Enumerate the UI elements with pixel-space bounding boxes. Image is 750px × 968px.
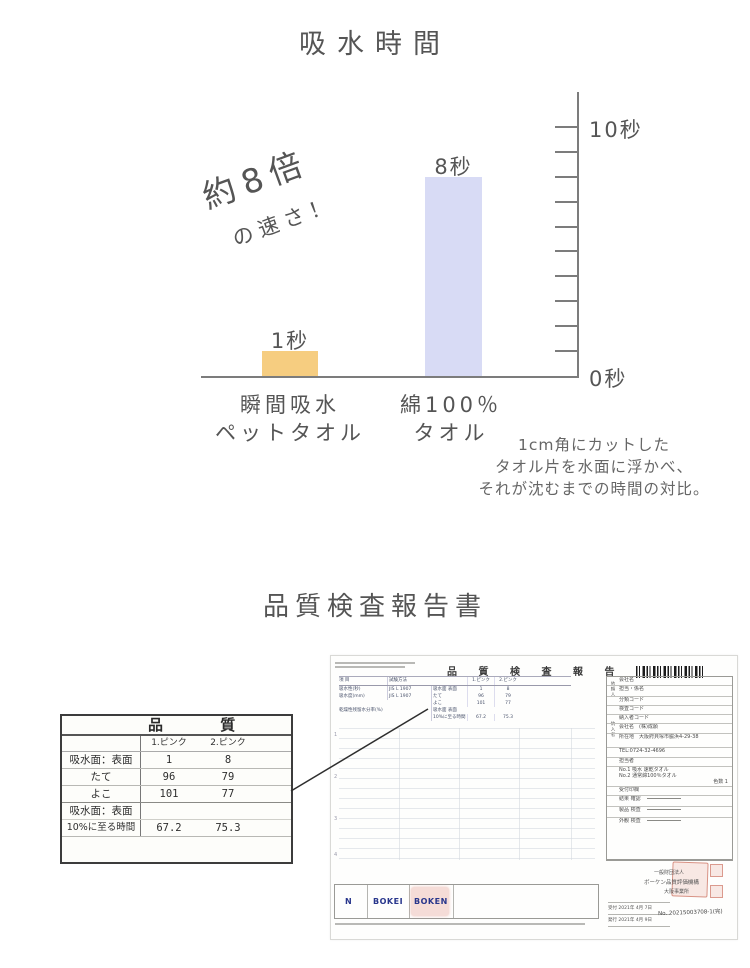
table-header-row: 項 目試験方法1.ピンク2.ピンク	[339, 676, 571, 686]
document-results-table: 項 目試験方法1.ピンク2.ピンク 吸水性(秒)JIS L 1907吸水面 表面…	[339, 676, 571, 721]
note-line: タオル片を水面に浮かべ、	[440, 456, 748, 478]
column-header: 1.ピンク	[141, 736, 197, 751]
y-axis-tick	[555, 176, 577, 178]
bar-value-label-pet-towel: 1秒	[256, 325, 324, 355]
grid-vertical-line	[459, 728, 460, 860]
org-name-line: 一般財団法人	[654, 869, 684, 876]
red-stamp-small	[710, 885, 723, 898]
y-axis-tick	[555, 226, 577, 228]
chart-title: 吸水時間	[0, 22, 750, 61]
y-axis-line	[577, 92, 579, 378]
excerpt-row: たて 96 79	[62, 769, 291, 786]
fine-print-line	[335, 662, 415, 664]
panel-row: 会社名	[607, 677, 732, 686]
grid-vertical-line	[571, 728, 572, 860]
y-axis-tick	[555, 300, 577, 302]
excerpt-row: 吸水面：表面 1 8	[62, 752, 291, 769]
grid-vertical-line	[519, 728, 520, 860]
logo-n: N	[345, 897, 352, 906]
logo-bokei: BOKEI	[373, 897, 403, 906]
row-number: 1	[334, 732, 337, 738]
divider	[409, 885, 410, 918]
panel-row-check: 外観 検査	[607, 818, 732, 828]
panel-row-check: 製品 検査	[607, 807, 732, 818]
y-axis-min-label: 0秒	[589, 363, 627, 393]
row-number: 2	[334, 774, 337, 780]
column-header: 2.ピンク	[197, 736, 259, 751]
fine-print-line	[335, 666, 405, 668]
panel-row-stamp: 受付印欄	[607, 787, 732, 796]
panel-row-company: 会社名 (株)成願	[607, 724, 732, 734]
y-axis-max-label: 10秒	[589, 114, 643, 144]
panel-row: 分類コード	[607, 697, 732, 706]
category-line: 瞬間吸水	[197, 391, 383, 419]
panel-row-tel: TEL:0724-32-4696	[607, 748, 732, 758]
category-line: 綿100％	[372, 391, 530, 419]
org-name-line: 大阪事業所	[664, 888, 689, 895]
report-section-title: 品質検査報告書	[0, 586, 750, 623]
note-line: それが沈むまでの時間の対比。	[440, 478, 748, 500]
note-line: 1cm角にカットした	[440, 434, 748, 456]
red-stamp-small	[710, 864, 723, 877]
x-axis-line	[201, 376, 579, 378]
divider	[367, 885, 368, 918]
table-row: 吸水度(mm)JIS L 1907たて9679	[339, 693, 571, 700]
report-number: No. 20215003708-1(完)	[658, 907, 723, 917]
method-note: 1cm角にカットした タオル片を水面に浮かべ、 それが沈むまでの時間の対比。	[440, 434, 748, 500]
panel-row-address: 所在地 大阪府貝塚市脇浜4-29-38	[607, 734, 732, 748]
table-row: 吸水性(秒)JIS L 1907吸水面 表面18	[339, 686, 571, 693]
y-axis-tick	[555, 325, 577, 327]
panel-row-person: 担当者	[607, 758, 732, 767]
y-axis-tick	[555, 350, 577, 352]
y-axis-tick	[555, 151, 577, 153]
row-number: 4	[334, 852, 337, 858]
org-name-line: ボーケン品質評価機構	[644, 878, 699, 886]
panel-row-check: 結果 確認	[607, 796, 732, 807]
excerpt-row: よこ 101 77	[62, 786, 291, 803]
empty-grid-lines	[339, 728, 595, 860]
excerpt-row: 10%に至る時間 67.2 75.3	[62, 820, 291, 837]
y-axis-tick	[555, 275, 577, 277]
logo-boken: BOKEN	[414, 897, 448, 906]
y-axis-tick	[555, 250, 577, 252]
page: 吸水時間 約8倍 の速さ！ 10秒 0秒 1秒 8秒 瞬間吸水 ペットタオル 綿…	[0, 0, 750, 968]
sample-colors: 色数 1	[713, 780, 728, 786]
panel-row: 納入者コード	[607, 715, 732, 724]
fine-print-line	[335, 923, 585, 925]
document-info-panel: 依頼人 納入者 会社名 担当・係名 分類コード 検査コード 納入者コード 会社名…	[606, 676, 733, 861]
certification-logo-box: N BOKEI BOKEN	[334, 884, 599, 919]
excerpt-table-title: 品 質 検	[62, 716, 291, 736]
divider	[453, 885, 454, 918]
grid-vertical-line	[399, 728, 400, 860]
excerpt-row: 吸水面：表面	[62, 803, 291, 820]
row-number: 3	[334, 816, 337, 822]
table-row: 乾燥性残留水分率(%)吸水面 表面	[339, 707, 571, 714]
table-row: 10%に至る時間67.275.3	[339, 714, 571, 721]
category-label-pet-towel: 瞬間吸水 ペットタオル	[197, 391, 383, 447]
issuing-organisation-block: 一般財団法人 ボーケン品質評価機構 大阪事業所 受付 2021年 4月 7日 発…	[606, 859, 733, 938]
report-document-scan: 品 質 検 査 報 告 書 項 目試験方法1.ピンク2.ピンク 吸水性(秒)JI…	[330, 655, 738, 940]
table-row: よこ10177	[339, 700, 571, 707]
category-line: ペットタオル	[197, 419, 383, 447]
excerpt-column-header-row: 1.ピンク 2.ピンク	[62, 736, 291, 752]
bar-value-label-cotton-towel: 8秒	[419, 151, 488, 181]
y-axis-tick	[555, 201, 577, 203]
panel-row-samples: No.1 吸水 速乾タオル No.2 通常綿100％タオル 色数 1	[607, 767, 732, 787]
bar-cotton-towel	[425, 177, 482, 376]
panel-row: 検査コード	[607, 706, 732, 715]
excerpt-table: 品 質 検 1.ピンク 2.ピンク 吸水面：表面 1 8 たて 96 79 よこ…	[60, 714, 293, 864]
y-axis-tick	[555, 126, 577, 128]
panel-row: 担当・係名	[607, 686, 732, 697]
